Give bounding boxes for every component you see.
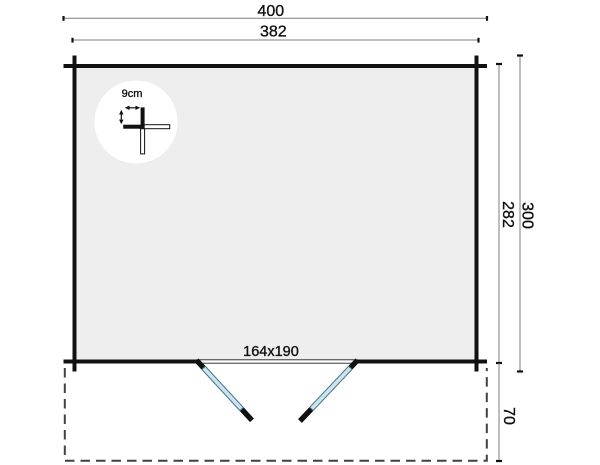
svg-text:70: 70 [500, 407, 517, 425]
svg-text:382: 382 [260, 24, 287, 41]
svg-text:282: 282 [499, 201, 516, 228]
svg-text:164x190: 164x190 [243, 344, 299, 360]
svg-text:300: 300 [519, 202, 536, 229]
svg-text:400: 400 [257, 3, 284, 20]
svg-text:9cm: 9cm [122, 88, 143, 100]
